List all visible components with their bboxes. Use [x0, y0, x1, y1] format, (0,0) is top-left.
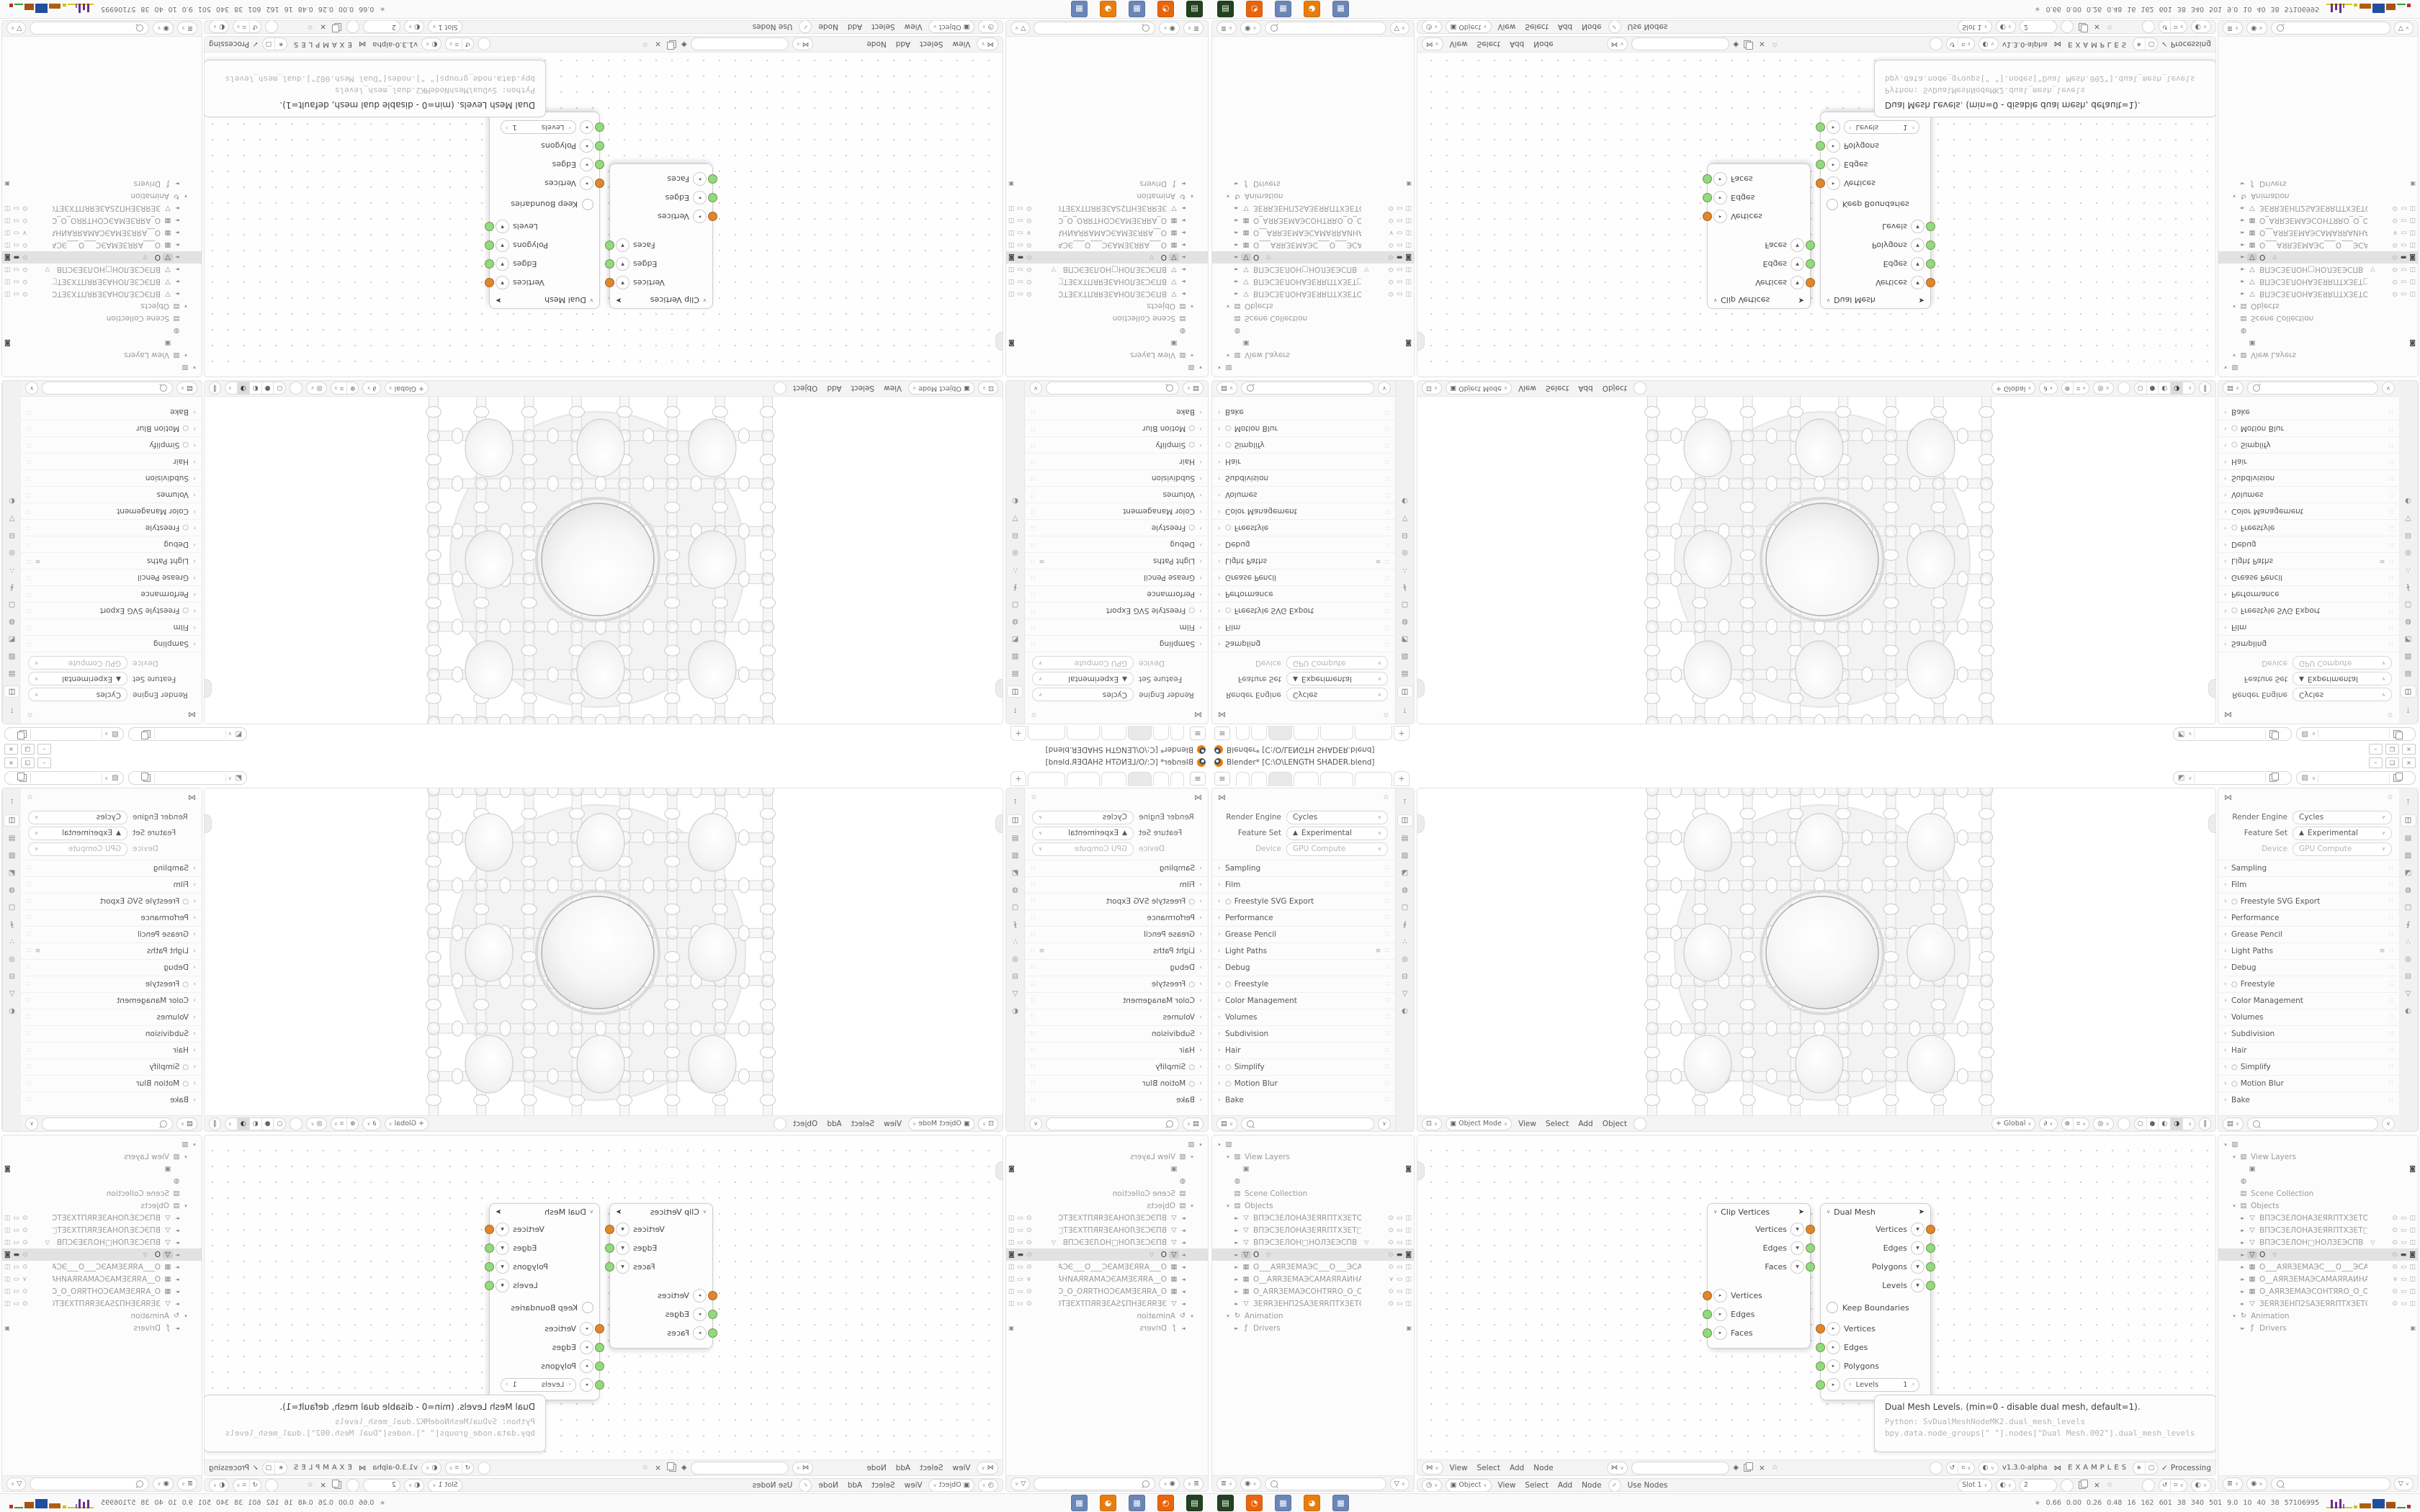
input-socket[interactable] — [1703, 193, 1712, 202]
node-output-row[interactable]: Edges ▼ — [1708, 255, 1810, 274]
outliner-row[interactable]: ◍ ▽ ▣ — [2, 1175, 202, 1187]
device-select[interactable]: GPU Compute∨ — [1286, 842, 1388, 856]
panel-header[interactable]: › ○ Simplify ≡ ∷ — [1212, 1058, 1395, 1075]
panel-header[interactable]: › ○ Performance ≡ ∷ — [1025, 909, 1208, 926]
scene-selector[interactable]: ◩∨ — [128, 727, 248, 741]
visibility-toggles[interactable]: ⊙▭◫ — [4, 1264, 28, 1271]
panel-header[interactable]: › ○ Color Management ≡ ∷ — [21, 503, 202, 520]
properties-tab[interactable]: ◍ — [5, 616, 19, 627]
properties-tab[interactable]: ∮ — [2401, 582, 2416, 593]
node-editor-type-button[interactable]: ⋈∨ — [977, 1462, 998, 1475]
outliner-row[interactable]: ▾ ▨ View Layers ▽ ▣ — [1212, 1151, 1414, 1163]
outliner-row[interactable]: ▾ ▧ ▽ ▣ — [1212, 1138, 1414, 1151]
socket-menu-button[interactable]: ▼ — [616, 1260, 629, 1274]
display-mode-button[interactable]: ▤∨ — [1183, 382, 1204, 395]
options-button[interactable]: ∨ — [25, 382, 38, 395]
properties-tab[interactable]: ▤ — [2401, 668, 2416, 679]
menu-add[interactable]: Add — [893, 40, 913, 49]
row-arrow-icon[interactable]: ► — [2238, 255, 2247, 261]
outliner-row[interactable]: ▾ ▨ View Layers ▽ ▣ — [2218, 1151, 2418, 1163]
panel-header[interactable]: › ○ Hair ≡ ∷ — [2218, 454, 2399, 470]
outliner-row[interactable]: ► ▽ ВПЭСЗЕЛОН□НОЛЗЕЭСПВ ▽ ⊙▭◫ ▣ — [1212, 1236, 1414, 1248]
menu-select[interactable]: Select — [917, 1464, 946, 1472]
properties-tab[interactable]: ◐ — [1008, 1006, 1023, 1017]
panel-checkbox[interactable]: ○ — [182, 898, 189, 906]
row-arrow-icon[interactable]: ► — [2238, 279, 2247, 285]
new-material-button[interactable] — [2061, 1479, 2074, 1492]
panel-header[interactable]: › ○ Volumes ≡ ∷ — [1025, 1009, 1208, 1025]
collapse-icon[interactable]: ∨ — [590, 297, 593, 303]
maximize-button[interactable]: ❏ — [2385, 757, 2399, 768]
outliner-display-mode[interactable]: ≣∨ — [177, 1477, 197, 1490]
visibility-toggles[interactable]: ⊙▭◫ — [2392, 1300, 2416, 1308]
close-button[interactable]: × — [4, 744, 18, 755]
levels-input-row[interactable]: ▸ ‹ Levels 1 › — [490, 1375, 599, 1394]
node-output-row[interactable]: Vertices ▼ — [1708, 1220, 1810, 1238]
blender-icon[interactable]: ◕ — [1100, 1, 1116, 17]
viewport-3d[interactable]: ⊡∨ ▣ Object Mode∨ View Select Add Object… — [204, 380, 1003, 724]
outliner-search-input[interactable] — [2271, 1477, 2390, 1490]
visibility-toggles[interactable]: ◙ — [2409, 340, 2416, 347]
mode-select[interactable]: ▣ Object Mode∨ — [908, 1117, 974, 1130]
output-socket[interactable] — [605, 1243, 614, 1253]
row-arrow-icon[interactable]: ► — [2238, 230, 2247, 236]
outliner-row[interactable]: ► ▦ O__АЯRЗЕМАЭСАМАЯRАИНАП__С ▽ ∨▭◫ ▣ — [1006, 227, 1208, 239]
visibility-toggles[interactable]: ∨▭◫ — [4, 1276, 27, 1283]
outliner-display-mode[interactable]: ≣∨ — [1183, 1477, 1204, 1490]
socket-menu-button[interactable]: ▼ — [1911, 1279, 1924, 1292]
panel-header[interactable]: › ○ Performance ≡ ∷ — [2218, 586, 2399, 603]
shading-mode-group[interactable]: ○ ● ◐ ◑ ∨ — [225, 1117, 287, 1130]
row-arrow-icon[interactable]: ► — [1232, 206, 1241, 212]
presets-icon[interactable]: ≡ — [1039, 948, 1045, 955]
outliner-row[interactable]: ▣ ▽ ◙ ▣ — [1212, 1163, 1414, 1175]
tree-type-icon[interactable]: ⋈∨ — [1607, 38, 1628, 51]
visibility-toggles[interactable]: ⊙▭◫ — [2392, 1227, 2416, 1234]
outliner-row[interactable]: ▤ Scene Collection ▽ ▣ — [1006, 1187, 1208, 1200]
visibility-toggles[interactable]: ⊙▭◫ — [2392, 291, 2416, 298]
properties-editor-icon[interactable]: ⋈ — [1194, 710, 1202, 719]
workspace-tab[interactable] — [1153, 772, 1169, 786]
row-arrow-icon[interactable]: ▾ — [2221, 1142, 2230, 1148]
row-arrow-icon[interactable]: ► — [1232, 1277, 1241, 1282]
panel-header[interactable]: › ○ Simplify ≡ ∷ — [1212, 437, 1395, 454]
properties-tab[interactable]: ▨ — [5, 850, 19, 861]
row-arrow-icon[interactable]: ► — [2238, 181, 2247, 187]
calculator-icon[interactable]: ▦ — [1332, 1495, 1349, 1511]
pin-icon[interactable]: ☆ — [27, 711, 33, 719]
row-arrow-icon[interactable]: ▾ — [190, 1142, 199, 1148]
render-engine-select[interactable]: Cycles∨ — [1032, 688, 1134, 702]
material-preview-icon[interactable]: ◐∨ — [1996, 1479, 2016, 1492]
fake-user-toggle[interactable] — [478, 1462, 490, 1475]
visibility-toggles[interactable]: ⊙▬◙ — [1388, 254, 1412, 261]
properties-tab[interactable]: ◐ — [1398, 1006, 1412, 1017]
firefox-icon[interactable]: ◔ — [1246, 1495, 1263, 1511]
input-socket[interactable] — [595, 1324, 604, 1333]
node-input-row[interactable]: ▸ Vertices — [490, 174, 599, 193]
node-toolbar-flap[interactable] — [995, 1161, 1003, 1180]
visibility-toggles[interactable]: ⊙▭◫ — [1008, 266, 1032, 274]
pin-icon[interactable]: ☆ — [307, 23, 313, 31]
close-button[interactable]: × — [2402, 757, 2416, 768]
feature-set-select[interactable]: ▲Experimental∨ — [1032, 827, 1134, 840]
node-tree-select[interactable] — [1631, 38, 1729, 51]
editor-type-button[interactable]: ⊡∨ — [1422, 1117, 1442, 1130]
properties-tab[interactable]: ▽ — [2401, 513, 2416, 523]
visibility-toggles[interactable]: ⊙▭◫ — [2392, 217, 2416, 225]
panel-header[interactable]: › ○ Motion Blur ≡ ∷ — [2218, 420, 2399, 437]
material-slot-select[interactable]: Slot 1∨ — [1958, 21, 1991, 34]
node-dual-mesh[interactable]: ∨Dual Mesh➤ Vertices ▼ Edges ▼ Polygons … — [489, 1203, 600, 1400]
workspace-tab[interactable] — [1128, 772, 1152, 786]
keep-boundaries-toggle[interactable]: Keep Boundaries — [1821, 1299, 1930, 1316]
overlay-button[interactable]: ◐∨ — [1978, 1462, 1999, 1475]
outliner-row[interactable]: ► ƒ Drivers ▽ ▣ — [2, 1322, 202, 1334]
levels-input-row[interactable]: ▸ ‹ Levels 1 › — [1821, 118, 1930, 137]
socket-menu-button[interactable]: ▼ — [496, 220, 509, 234]
panel-header[interactable]: › ○ Light Paths ≡ ∷ — [21, 942, 202, 959]
workspace-tab[interactable] — [1067, 772, 1100, 786]
menu-node[interactable]: Node — [1579, 23, 1604, 32]
blender-icon[interactable]: ◕ — [1304, 1, 1320, 17]
outliner-row[interactable]: ► ƒ Drivers ▽ ▣ — [2218, 178, 2418, 190]
menu-node[interactable]: Node — [815, 1481, 841, 1490]
output-socket[interactable] — [485, 1262, 494, 1272]
input-socket[interactable] — [708, 1291, 717, 1300]
outliner-row[interactable]: ► ▽ ВПЭСЗЕЛОНАЗЕЯRПТХЗЕТ□ТЗЕХ ▽ ⊙▭◫ ▣ — [2218, 1224, 2418, 1236]
outliner-row[interactable]: ◍ ▽ ▣ — [1006, 1175, 1208, 1187]
visibility-toggles[interactable]: ⊙▭◫ — [2392, 1264, 2416, 1271]
blender-icon[interactable]: ◕ — [1304, 1495, 1320, 1511]
workspace-tab[interactable] — [1170, 726, 1184, 740]
row-arrow-icon[interactable]: ► — [173, 267, 181, 273]
toolbar-flap[interactable] — [1417, 814, 1425, 833]
properties-tab[interactable]: ⊟ — [2401, 971, 2416, 982]
panel-header[interactable]: › ○ Grease Pencil ≡ ∷ — [1212, 926, 1395, 942]
feature-set-select[interactable]: ▲Experimental∨ — [1032, 672, 1134, 686]
row-arrow-icon[interactable]: ▾ — [2221, 365, 2230, 371]
copy-icon[interactable] — [2079, 23, 2086, 31]
panel-header[interactable]: › ○ Debug ≡ ∷ — [1212, 536, 1395, 553]
panel-header[interactable]: › ○ Performance ≡ ∷ — [1212, 586, 1395, 603]
snapping-group[interactable]: ⊕⌗∨ — [2061, 1117, 2090, 1130]
menu-add[interactable]: Add — [1575, 384, 1595, 393]
examples-button[interactable]: EXAMPLES — [291, 1464, 352, 1472]
panel-header[interactable]: › ○ Freestyle SVG Export ≡ ∷ — [1212, 603, 1395, 619]
overlay-button[interactable]: ◐∨ — [209, 1479, 229, 1492]
snapping-group[interactable]: ↺⌗∨ — [1946, 38, 1975, 51]
panel-header[interactable]: › ○ Motion Blur ≡ ∷ — [1025, 1075, 1208, 1092]
input-socket[interactable] — [708, 1328, 717, 1338]
menu-view[interactable]: View — [881, 384, 905, 393]
input-socket[interactable] — [595, 1380, 604, 1390]
feature-set-select[interactable]: ▲Experimental∨ — [2293, 827, 2392, 840]
shading-mode-group[interactable]: ○ ● ◐ ◑ ∨ — [225, 382, 287, 395]
visibility-toggles[interactable]: ⊙▭◫ — [1388, 1288, 1412, 1295]
socket-menu-button[interactable]: ▼ — [496, 1241, 509, 1255]
properties-tab[interactable]: ◐ — [1008, 495, 1023, 506]
overlay-button[interactable]: ◐∨ — [209, 21, 229, 34]
proportional-edit-button[interactable]: ◎∨ — [2093, 1117, 2113, 1130]
node-output-row[interactable]: Edges ▼ — [1821, 1238, 1930, 1257]
editor-type-button[interactable]: ⊡∨ — [1422, 382, 1442, 395]
socket-menu-button[interactable]: ▼ — [616, 1241, 629, 1255]
socket-menu-button[interactable]: ▼ — [1911, 258, 1924, 271]
panel-checkbox[interactable]: ○ — [1188, 898, 1195, 906]
menu-view[interactable]: View — [949, 1464, 973, 1472]
pin-icon[interactable]: ☆ — [1383, 711, 1389, 719]
socket-menu-button[interactable]: ▼ — [1791, 1223, 1804, 1236]
panel-header[interactable]: › ○ Performance ≡ ∷ — [2218, 909, 2399, 926]
outliner-row[interactable]: ► ▽ ВПЭСЗЕЛОНАЗЕЯRПТХЗЕТОТЗЕ) ▽ ⊙▭◫ ▣ — [1006, 1212, 1208, 1224]
outliner-row[interactable]: ◍ ▽ ▣ — [1212, 1175, 1414, 1187]
node-output-row[interactable]: Edges ▼ — [610, 255, 712, 274]
panel-checkbox[interactable]: ○ — [1188, 1063, 1195, 1071]
minimize-button[interactable]: – — [37, 757, 51, 768]
increment-arrow[interactable]: › — [506, 124, 508, 131]
panel-header[interactable]: › ○ Simplify ≡ ∷ — [21, 1058, 202, 1075]
panel-header[interactable]: › ○ Volumes ≡ ∷ — [1025, 487, 1208, 503]
output-socket[interactable] — [485, 240, 494, 250]
outliner-row[interactable]: ▾ ▧ ▽ ▣ — [1006, 361, 1208, 374]
node-toolbar-flap[interactable] — [995, 332, 1003, 351]
properties-editor-icon[interactable]: ⋈ — [2224, 793, 2232, 802]
outliner-row[interactable]: ▾ ↻ Animation ▽ ▣ — [2, 190, 202, 202]
node-output-row[interactable]: Vertices ▼ — [1821, 1220, 1930, 1238]
panel-checkbox[interactable]: ○ — [182, 524, 189, 532]
snapping-group[interactable]: ⊕⌗∨ — [2061, 382, 2090, 395]
properties-tab[interactable]: ◫ — [1008, 814, 1023, 827]
outliner-row[interactable]: ► ▦ O__АЯRЗЕМАЭСАМАЯRАИНАП__С ▽ ∨▭◫ ▣ — [1006, 1273, 1208, 1285]
properties-editor-icon[interactable]: ⋈ — [1218, 793, 1226, 802]
menu-add[interactable]: Add — [1555, 23, 1575, 32]
panel-header[interactable]: › ○ Sampling ≡ ∷ — [1025, 636, 1208, 652]
properties-tab[interactable]: ◩ — [5, 634, 19, 644]
node-output-row[interactable]: Edges ▼ — [610, 1238, 712, 1257]
output-socket[interactable] — [1926, 1281, 1935, 1290]
properties-tab[interactable]: ◐ — [5, 495, 19, 506]
row-arrow-icon[interactable]: ► — [173, 243, 181, 248]
node-input-row[interactable]: ▸ Vertices — [610, 1286, 712, 1305]
row-arrow-icon[interactable]: ► — [1232, 1228, 1241, 1233]
outliner-row[interactable]: ▾ ▤ Objects ▽ ▣ — [1006, 1200, 1208, 1212]
toolbar-flap[interactable] — [995, 679, 1003, 698]
panel-header[interactable]: › ○ Freestyle ≡ ∷ — [21, 520, 202, 536]
workspace-tab[interactable] — [1294, 772, 1319, 786]
close-button[interactable]: × — [2402, 744, 2416, 755]
outliner-row[interactable]: ► ▽ O ▽ ⊙▬◙ ▣ — [2218, 1248, 2418, 1261]
collapse-icon[interactable]: ∨ — [590, 1209, 593, 1215]
panel-header[interactable]: › ○ Subdivision ≡ ∷ — [1212, 470, 1395, 487]
row-arrow-icon[interactable]: ► — [1232, 1240, 1241, 1246]
outliner-row[interactable]: ► ▽ ВПЭСЗЕЛОНАЗЕЯRПТХЗЕТ□ТЗЕХ ▽ ⊙▭◫ ▣ — [1006, 1224, 1208, 1236]
row-arrow-icon[interactable]: ► — [173, 230, 181, 236]
unlink-button[interactable]: × — [2091, 1481, 2103, 1490]
outliner-row[interactable]: ► ▦ O___АЯRЗЕМАЭС___O___ЭСАМЗ ▽ ⊙▭◫ ▣ — [1212, 239, 1414, 251]
calculator-icon[interactable]: ▦ — [1129, 1, 1145, 17]
visibility-toggles[interactable]: ⊙▭◫ — [4, 1215, 28, 1222]
row-arrow-icon[interactable]: ► — [173, 1301, 181, 1307]
outliner-row[interactable]: ► ▦ O___АЯRЗЕМАЭС___O___ЭСАМЗ ▽ ⊙▭◫ ▣ — [2, 1261, 202, 1273]
outliner-row[interactable]: ► ▽ ВПЭСЗЕЛОН□НОЛЗЕЭСПВ ▽ ⊙▭◫ ▣ — [2, 264, 202, 276]
pin-icon[interactable]: ☆ — [1772, 40, 1778, 48]
pause-button[interactable]: ‖ — [2199, 382, 2211, 395]
panel-checkbox[interactable]: ○ — [182, 607, 189, 615]
panel-header[interactable]: › ○ Debug ≡ ∷ — [21, 959, 202, 976]
node-tools-group[interactable]: ∗▢ — [262, 38, 287, 51]
pin-icon[interactable]: ☆ — [1772, 1464, 1778, 1472]
link-menu-button[interactable]: ▸ — [1827, 140, 1840, 153]
sverchok-node-editor[interactable]: ∨Clip Vertices➤ Vertices ▼ Edges ▼ Faces… — [204, 36, 1003, 377]
properties-tab[interactable]: ◫ — [2401, 685, 2416, 698]
row-arrow-icon[interactable]: ► — [1179, 1264, 1188, 1270]
panel-header[interactable]: › ○ Motion Blur ≡ ∷ — [21, 1075, 202, 1092]
copy-icon[interactable] — [143, 774, 151, 782]
visibility-toggles[interactable]: ⊙▭◫ — [1388, 242, 1412, 249]
panel-header[interactable]: › ○ Color Management ≡ ∷ — [2218, 992, 2399, 1009]
search-input[interactable] — [42, 1117, 173, 1130]
properties-tab[interactable]: ◍ — [1008, 616, 1023, 627]
properties-tab[interactable]: ▽ — [1008, 513, 1023, 523]
visibility-toggles[interactable]: ◙ — [4, 1166, 11, 1173]
visibility-toggles[interactable]: ⊙▭◫ — [1388, 1239, 1412, 1246]
menu-view[interactable]: View — [881, 1120, 905, 1128]
properties-tab[interactable]: ∮ — [1398, 919, 1412, 930]
add-workspace-button[interactable]: + — [1394, 771, 1410, 786]
row-arrow-icon[interactable]: ▾ — [1196, 365, 1205, 371]
row-arrow-icon[interactable]: ► — [173, 1277, 181, 1282]
visibility-toggles[interactable]: ◙ — [4, 340, 11, 347]
outliner-filter-mode[interactable]: ◉∨ — [1240, 22, 1260, 35]
input-socket[interactable] — [1703, 1328, 1712, 1338]
levels-input-row[interactable]: ▸ ‹ Levels 1 › — [490, 118, 599, 137]
calculator-icon[interactable]: ▦ — [1275, 1, 1291, 17]
node-input-row[interactable]: ▸ Faces — [610, 1323, 712, 1342]
properties-tab[interactable]: ▨ — [2401, 850, 2416, 861]
view-layer-selector[interactable]: ▨∨ — [2296, 727, 2416, 741]
outliner-row[interactable]: ► ▽ ВПЭСЗЕЛОН□НОЛЗЕЭСПВ ▽ ⊙▭◫ ▣ — [1212, 264, 1414, 276]
row-arrow-icon[interactable]: ► — [1232, 230, 1241, 236]
outliner-filter-mode[interactable]: ◉∨ — [153, 22, 173, 35]
outliner-row[interactable]: ► ▽ O ▽ ⊙▬◙ ▣ — [1212, 1248, 1414, 1261]
properties-tab[interactable]: ◩ — [2401, 634, 2416, 644]
row-arrow-icon[interactable]: ► — [1179, 243, 1188, 248]
panel-header[interactable]: › ○ Freestyle SVG Export ≡ ∷ — [1212, 893, 1395, 909]
outliner-row[interactable]: ► ▽ ЗЕЯRЗЕНП2SАЗЕЯRПТХЗЕТОТЗЕ ▽ ⊙▭◫ ▣ — [1006, 202, 1208, 215]
properties-tab[interactable]: ▢ — [2401, 902, 2416, 913]
outliner-display-mode[interactable]: ≣∨ — [177, 22, 197, 35]
add-workspace-button[interactable]: + — [1010, 771, 1026, 786]
copy-icon[interactable] — [1744, 40, 1751, 48]
properties-tab[interactable]: ▢ — [5, 902, 19, 913]
shield-icon[interactable]: ◈ — [681, 1464, 687, 1472]
panel-checkbox[interactable]: ○ — [182, 425, 189, 433]
row-arrow-icon[interactable]: ▾ — [2230, 1313, 2238, 1319]
fake-user-toggle[interactable] — [1930, 1462, 1942, 1475]
outliner-row[interactable]: ► ▽ ВПЭСЗЕЛОН□НОЛЗЕЭСПВ ▽ ⊙▭◫ ▣ — [2218, 264, 2418, 276]
properties-tab[interactable]: ◩ — [1398, 634, 1412, 644]
node-tools-group[interactable]: ∗▢ — [2133, 38, 2158, 51]
material-preview-icon[interactable]: ◐∨ — [404, 1479, 424, 1492]
panel-header[interactable]: › ○ Volumes ≡ ∷ — [21, 1009, 202, 1025]
row-arrow-icon[interactable]: ► — [1179, 279, 1188, 285]
use-nodes-checkbox[interactable]: ✓ — [799, 1479, 812, 1492]
output-socket[interactable] — [1926, 1243, 1935, 1253]
file-manager-icon[interactable]: ▤ — [1217, 1495, 1234, 1511]
output-socket[interactable] — [485, 259, 494, 269]
outliner-row[interactable]: ► ▽ O ▽ ⊙▬◙ ▣ — [2, 251, 202, 264]
shader-editor-type-button[interactable]: ◷∨ — [978, 21, 998, 34]
outliner-row[interactable]: ► ▦ O__АЯRЗЕМАЭСАМАЯRАИНАП__С ▽ ∨▭◫ ▣ — [2218, 227, 2418, 239]
material-name-field[interactable]: 2 — [2020, 21, 2057, 34]
visibility-toggles[interactable]: ⊙▭◫ — [1008, 1288, 1032, 1295]
node-output-row[interactable]: Vertices ▼ — [610, 274, 712, 292]
properties-tab[interactable]: ⊺ — [5, 704, 19, 715]
row-arrow-icon[interactable]: ► — [1179, 267, 1188, 273]
outliner-row[interactable]: ▾ ▤ Objects ▽ ▣ — [2, 300, 202, 312]
properties-tab[interactable]: ▤ — [5, 668, 19, 679]
row-arrow-icon[interactable]: ► — [173, 255, 181, 261]
render-engine-select[interactable]: Cycles∨ — [1286, 688, 1388, 702]
link-menu-button[interactable]: ▸ — [1827, 1378, 1840, 1392]
menu-add[interactable]: Add — [845, 1481, 865, 1490]
menu-object[interactable]: Object — [1600, 1120, 1630, 1128]
shader-context-select[interactable]: ▣ Object∨ — [929, 1479, 974, 1492]
node-input-row[interactable]: ▸ Faces — [1708, 170, 1810, 189]
link-menu-button[interactable]: ▸ — [1827, 1341, 1840, 1354]
panel-header[interactable]: › ○ Film ≡ ∷ — [1212, 876, 1395, 893]
output-socket[interactable] — [1806, 278, 1815, 287]
link-menu-button[interactable]: ▸ — [1713, 210, 1727, 224]
visibility-toggles[interactable]: ⊙▭◫ — [1008, 1215, 1032, 1222]
properties-tab[interactable]: ◎ — [1008, 547, 1023, 558]
outliner-row[interactable]: ▾ ▨ View Layers ▽ ▣ — [2, 349, 202, 361]
workspace-tab[interactable] — [1236, 726, 1250, 740]
row-arrow-icon[interactable]: ▾ — [1215, 1142, 1224, 1148]
properties-tab[interactable]: ▨ — [1398, 850, 1412, 861]
properties-tab[interactable]: ◐ — [2401, 495, 2416, 506]
outliner-row[interactable]: ▾ ▧ ▽ ▣ — [2218, 361, 2418, 374]
panel-checkbox[interactable]: ○ — [182, 1080, 189, 1088]
properties-tab[interactable]: ⊺ — [1398, 797, 1412, 808]
panel-header[interactable]: › ○ Color Management ≡ ∷ — [2218, 503, 2399, 520]
row-arrow-icon[interactable]: ► — [173, 1252, 181, 1258]
output-socket[interactable] — [1926, 240, 1935, 250]
outliner-filter-mode[interactable]: ◉∨ — [1159, 1477, 1179, 1490]
levels-number-field[interactable]: ‹ Levels 1 › — [501, 121, 576, 135]
menu-select[interactable]: Select — [1522, 1481, 1551, 1490]
menu-add[interactable]: Add — [824, 1120, 844, 1128]
outliner-row[interactable]: ▾ ▤ Objects ▽ ▣ — [2, 1200, 202, 1212]
row-arrow-icon[interactable]: ► — [1232, 218, 1241, 224]
toolbar-flap[interactable] — [1417, 679, 1425, 698]
overlay-button[interactable]: ◐∨ — [2191, 21, 2211, 34]
outliner-row[interactable]: ▾ ↻ Animation ▽ ▣ — [2, 1310, 202, 1322]
shading-mode-group[interactable]: ○ ● ◐ ◑ ∨ — [2134, 1117, 2196, 1130]
input-socket[interactable] — [595, 1343, 604, 1352]
display-mode-button[interactable]: ▤∨ — [2223, 382, 2244, 395]
visibility-toggles[interactable]: ⊙▬◙ — [2392, 254, 2416, 261]
panel-header[interactable]: › ○ Sampling ≡ ∷ — [2218, 636, 2399, 652]
outliner-row[interactable]: ▾ ▨ View Layers ▽ ▣ — [2, 1151, 202, 1163]
properties-tab[interactable]: ◍ — [1398, 885, 1412, 896]
workspace-tab[interactable] — [1320, 726, 1353, 740]
calculator-icon[interactable]: ▦ — [1332, 1, 1349, 17]
visibility-toggles[interactable]: ⊙▭◫ — [1388, 1215, 1412, 1222]
node-output-row[interactable]: Polygons ▼ — [1821, 236, 1930, 255]
menu-select[interactable]: Select — [1474, 1464, 1503, 1472]
